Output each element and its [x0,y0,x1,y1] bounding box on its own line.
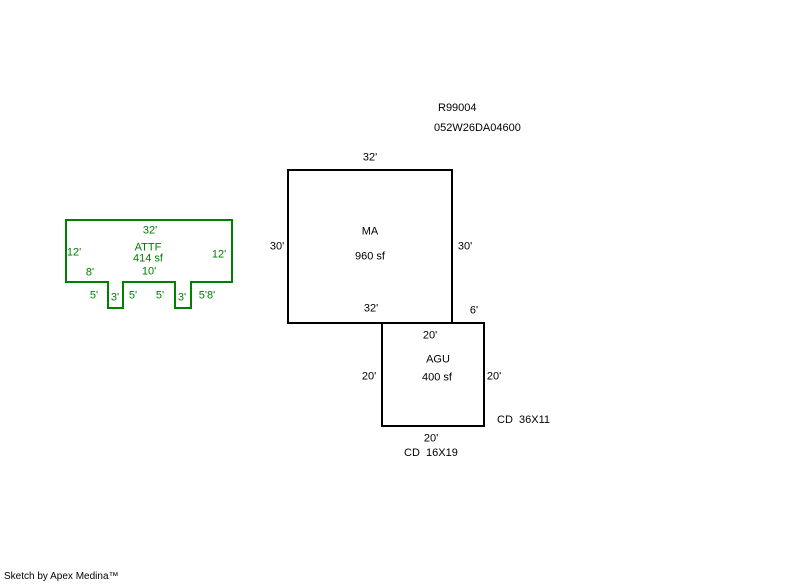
agu-dim-left: 20' [362,372,376,383]
attf-dim-notch-4: 5' [156,291,164,302]
attf-dim-left: 12' [67,248,81,259]
attf-dim-top: 32' [143,226,157,237]
agu-dim-top: 20' [423,331,437,342]
ma-area-label: 960 sf [355,252,385,263]
ma-dim-right: 30' [458,242,472,253]
record-number: R99004 [438,103,477,114]
agu-name-label: AGU [426,355,450,366]
cd-note-right: CD 36X11 [497,415,550,426]
attf-dim-right: 12' [212,250,226,261]
ma-outline [288,170,452,323]
agu-dim-right: 20' [487,372,501,383]
ma-dim-left: 30' [270,242,284,253]
attf-dim-notch-1: 5' [90,291,98,302]
cd-note-bottom: CD 16X19 [404,448,458,459]
ma-name-label: MA [362,227,379,238]
attf-dim-bottom-mid: 10' [142,267,156,278]
ma-dim-bottom: 32' [364,304,378,315]
attf-dim-notch-2: 3' [111,293,119,304]
parcel-number: 052W26DA04600 [434,123,521,134]
sketch-page: R99004 052W26DA04600 32' ATTF 414 sf 12'… [0,0,800,587]
attf-dim-bottom-left: 8' [86,268,94,279]
agu-dim-bottom: 20' [424,434,438,445]
agu-area-label: 400 sf [422,373,452,384]
attf-dim-notch-5: 3' [178,293,186,304]
attf-area-label: 414 sf [133,254,163,265]
sketch-credit: Sketch by Apex Medina™ [4,572,119,582]
attf-dim-notch-3: 5' [129,291,137,302]
attf-dim-notch-6: 5'8' [199,291,215,302]
building-sketch [0,0,800,587]
ma-dim-top: 32' [363,153,377,164]
ma-dim-extension: 6' [470,306,478,317]
